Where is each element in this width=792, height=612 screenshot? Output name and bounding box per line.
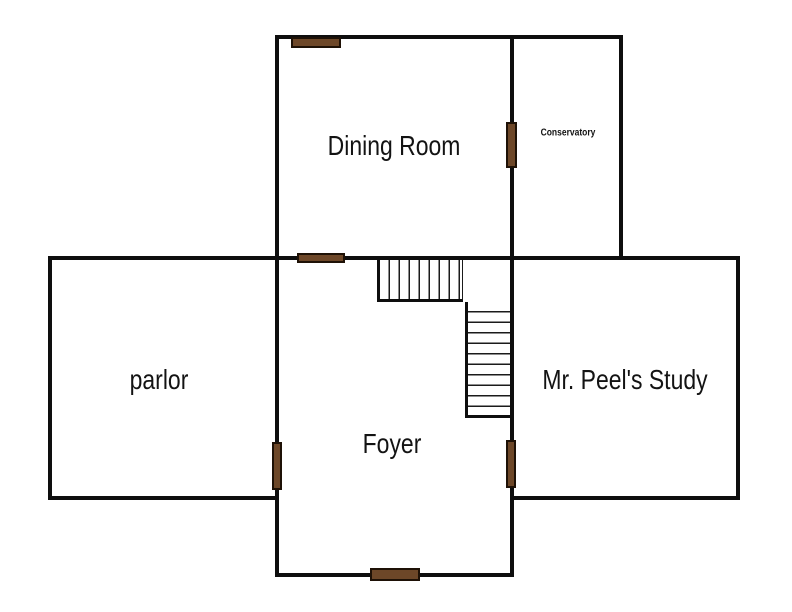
wall-study-east — [736, 256, 740, 500]
label-dining-room: Dining Room — [328, 130, 461, 162]
door-parlor-foyer — [272, 442, 282, 490]
label-foyer: Foyer — [363, 428, 422, 460]
door-foyer-study — [506, 440, 516, 488]
staircase-lower-run — [465, 302, 510, 418]
door-dining-foyer — [297, 253, 345, 263]
wall-study-south — [510, 496, 740, 500]
label-parlor: parlor — [130, 364, 189, 396]
door-front-entrance — [370, 568, 420, 581]
staircase-upper-run — [377, 260, 463, 302]
door-dining-conservatory — [506, 122, 517, 168]
door-dining-exterior — [291, 37, 341, 48]
label-conservatory: Conservatory — [541, 128, 596, 139]
wall-parlor-south — [48, 496, 279, 500]
floor-plan: Dining Room Conservatory parlor Mr. Peel… — [0, 0, 792, 612]
label-study: Mr. Peel's Study — [542, 364, 707, 396]
wall-conservatory-east — [619, 35, 623, 260]
wall-parlor-west — [48, 256, 52, 500]
